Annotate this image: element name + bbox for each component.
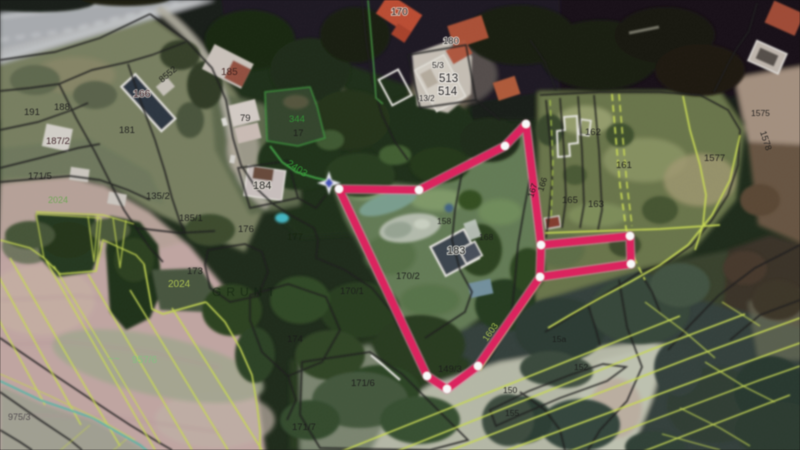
svg-text:165: 165 xyxy=(562,195,578,206)
svg-text:188: 188 xyxy=(54,102,70,113)
svg-text:191: 191 xyxy=(24,107,40,118)
svg-text:344: 344 xyxy=(289,114,305,125)
svg-text:135/2: 135/2 xyxy=(146,191,170,202)
svg-text:158: 158 xyxy=(437,216,451,226)
svg-text:152: 152 xyxy=(574,362,588,372)
svg-text:513: 513 xyxy=(439,73,458,85)
svg-text:181: 181 xyxy=(119,125,135,136)
svg-text:184: 184 xyxy=(253,180,271,192)
svg-text:176: 176 xyxy=(238,224,254,235)
svg-text:155: 155 xyxy=(505,408,519,418)
svg-text:1577: 1577 xyxy=(704,153,725,164)
svg-text:13/2: 13/2 xyxy=(419,94,435,103)
svg-text:180: 180 xyxy=(443,36,459,47)
svg-text:170/1: 170/1 xyxy=(340,286,364,297)
svg-text:1575: 1575 xyxy=(751,108,770,118)
svg-text:150: 150 xyxy=(503,385,517,395)
svg-text:975/3: 975/3 xyxy=(8,412,31,422)
svg-text:163: 163 xyxy=(588,199,604,210)
svg-text:~~: ~~ xyxy=(108,354,120,365)
svg-text:171/7: 171/7 xyxy=(292,422,316,433)
svg-text:173: 173 xyxy=(187,266,203,277)
svg-text:5/3: 5/3 xyxy=(432,60,444,70)
svg-text:79: 79 xyxy=(240,113,251,124)
svg-text:17: 17 xyxy=(293,128,304,139)
svg-text:170/2: 170/2 xyxy=(396,271,420,282)
svg-text:2024: 2024 xyxy=(48,195,68,205)
svg-text:185: 185 xyxy=(221,67,238,78)
svg-text:187/2: 187/2 xyxy=(46,136,70,147)
svg-text:183: 183 xyxy=(447,245,465,257)
svg-text:174: 174 xyxy=(287,334,303,345)
svg-text:177: 177 xyxy=(287,232,303,243)
svg-text:2024: 2024 xyxy=(168,279,191,290)
svg-text:161: 161 xyxy=(616,160,632,171)
svg-text:162: 162 xyxy=(585,127,601,138)
svg-text:957/6: 957/6 xyxy=(132,355,157,366)
svg-text:GRUNT: GRUNT xyxy=(212,285,280,299)
svg-text:171/6: 171/6 xyxy=(351,378,375,389)
svg-text:514: 514 xyxy=(438,86,458,98)
svg-text:168: 168 xyxy=(479,232,493,242)
svg-text:185/1: 185/1 xyxy=(179,213,203,224)
svg-text:149/3: 149/3 xyxy=(438,364,462,375)
svg-text:171/5: 171/5 xyxy=(28,171,52,182)
svg-text:170: 170 xyxy=(391,7,408,18)
svg-text:166: 166 xyxy=(133,88,151,100)
svg-text:15a: 15a xyxy=(552,334,566,344)
